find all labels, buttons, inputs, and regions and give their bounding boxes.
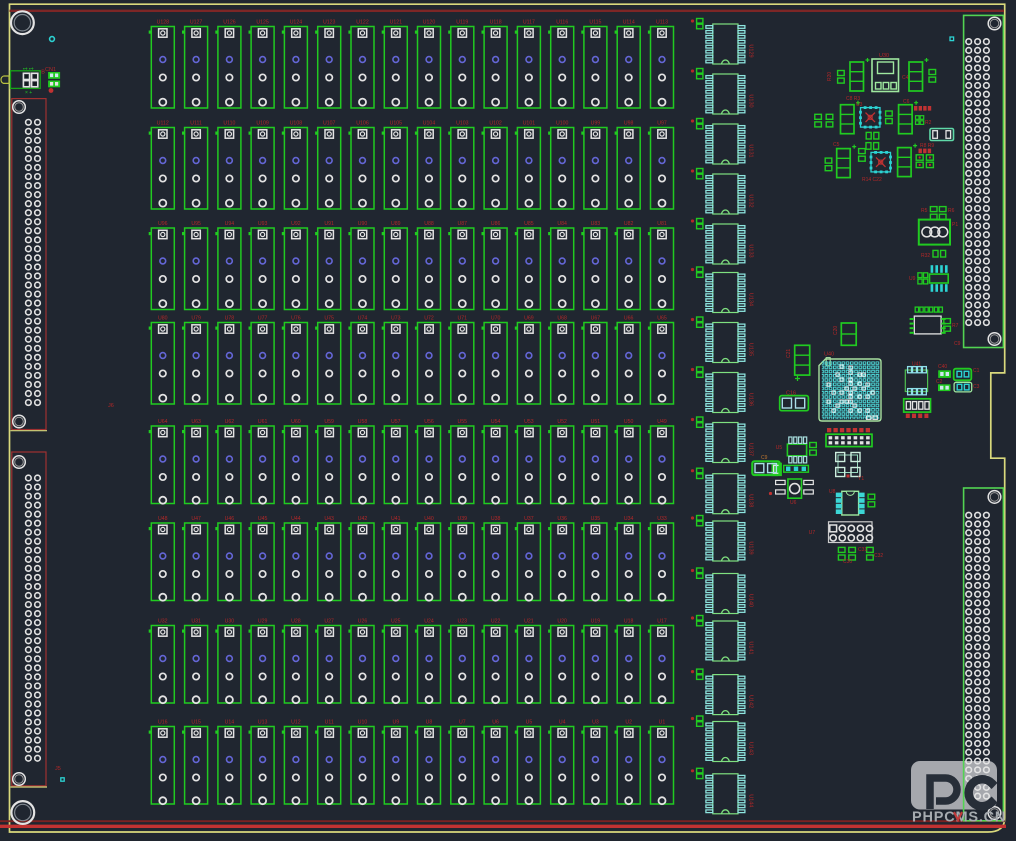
svg-text:U36: U36 (557, 516, 567, 522)
svg-text:U113: U113 (656, 19, 668, 25)
svg-text:U121: U121 (390, 19, 403, 25)
svg-text:U56: U56 (424, 419, 434, 425)
svg-text:U96: U96 (158, 221, 168, 227)
svg-text:U72: U72 (424, 315, 434, 321)
svg-text:U62: U62 (225, 419, 235, 425)
svg-text:U119: U119 (456, 19, 468, 25)
svg-text:× +: × + (25, 90, 32, 96)
svg-text:U4: U4 (559, 719, 566, 725)
svg-text:U144: U144 (748, 794, 754, 807)
svg-text:U48: U48 (158, 516, 168, 522)
svg-text:U16: U16 (158, 719, 168, 725)
svg-text:U13: U13 (258, 719, 268, 725)
svg-text:U6: U6 (790, 500, 797, 506)
svg-text:C6: C6 (903, 99, 910, 105)
svg-text:U44: U44 (291, 516, 301, 522)
svg-text:U106: U106 (356, 120, 369, 126)
svg-text:U141: U141 (748, 641, 754, 654)
svg-text:U125: U125 (256, 19, 269, 25)
svg-text:C30: C30 (843, 559, 852, 565)
svg-text:U101: U101 (523, 120, 536, 126)
svg-text:U89: U89 (391, 221, 401, 227)
svg-text:R8 R9: R8 R9 (920, 143, 934, 149)
svg-text:U59: U59 (324, 419, 334, 425)
svg-text:U127: U127 (190, 19, 203, 25)
svg-text:U131: U131 (748, 144, 754, 157)
svg-text:U24: U24 (424, 618, 434, 624)
svg-text:U61: U61 (258, 419, 268, 425)
svg-text:U22: U22 (491, 618, 501, 624)
svg-text:U95: U95 (191, 221, 201, 227)
svg-text:U17: U17 (657, 618, 667, 624)
svg-text:U100: U100 (556, 120, 569, 126)
svg-text:U7: U7 (459, 719, 466, 725)
svg-text:U97: U97 (657, 120, 667, 126)
svg-text:U91: U91 (324, 221, 334, 227)
svg-text:U40: U40 (424, 516, 434, 522)
svg-text:U7: U7 (809, 530, 816, 536)
svg-text:U138: U138 (748, 494, 754, 507)
svg-text:U114: U114 (623, 19, 635, 25)
svg-text:U5: U5 (776, 445, 783, 451)
svg-text:U25: U25 (391, 618, 401, 624)
svg-text:R5: R5 (921, 208, 928, 214)
svg-text:U35: U35 (591, 516, 601, 522)
svg-text:U92: U92 (291, 221, 301, 227)
svg-text:U19: U19 (591, 618, 601, 624)
svg-text:U142: U142 (748, 695, 754, 708)
svg-text:U128: U128 (157, 19, 170, 25)
svg-text:U118: U118 (490, 19, 502, 25)
svg-text:U51: U51 (591, 419, 601, 425)
svg-text:U82: U82 (624, 221, 634, 227)
svg-text:U129: U129 (748, 44, 754, 57)
svg-text:C1: C1 (973, 368, 980, 374)
svg-text:U69: U69 (524, 315, 534, 321)
svg-text:U53: U53 (524, 419, 534, 425)
svg-text:U20: U20 (557, 618, 567, 624)
svg-text:U47: U47 (191, 516, 201, 522)
svg-text:U30: U30 (225, 618, 235, 624)
svg-text:C2: C2 (936, 379, 943, 385)
svg-text:C9: C9 (761, 455, 768, 461)
svg-text:U49: U49 (657, 419, 667, 425)
svg-text:U123: U123 (323, 19, 336, 25)
svg-text:U21: U21 (524, 618, 534, 624)
svg-text:C32: C32 (874, 553, 883, 559)
svg-text:R14 C22: R14 C22 (862, 177, 882, 183)
svg-text:U107: U107 (323, 120, 336, 126)
svg-text:U12: U12 (291, 719, 301, 725)
svg-text:U31: U31 (191, 618, 201, 624)
svg-text:Y1: Y1 (858, 476, 864, 482)
svg-text:U8: U8 (829, 489, 836, 495)
svg-text:U86: U86 (491, 221, 501, 227)
svg-text:U93: U93 (258, 221, 268, 227)
svg-text:U139: U139 (748, 541, 754, 554)
svg-text:U54: U54 (491, 419, 501, 425)
svg-text:U29: U29 (258, 618, 268, 624)
svg-text:U64: U64 (158, 419, 168, 425)
svg-text:U43: U43 (324, 516, 334, 522)
svg-text:U41: U41 (391, 516, 401, 522)
svg-text:U74: U74 (358, 315, 368, 321)
svg-text:U8: U8 (426, 719, 433, 725)
svg-text:U50: U50 (624, 419, 634, 425)
svg-text:U99: U99 (591, 120, 601, 126)
svg-text:R6: R6 (948, 208, 955, 214)
svg-text:U41: U41 (912, 362, 921, 368)
svg-text:U39: U39 (458, 516, 468, 522)
svg-text:U94: U94 (225, 221, 235, 227)
svg-text:U132: U132 (748, 194, 754, 207)
svg-text:U135: U135 (748, 343, 754, 356)
svg-text:U10: U10 (358, 719, 368, 725)
svg-text:U112: U112 (157, 120, 169, 126)
svg-text:U45: U45 (258, 516, 268, 522)
svg-text:U73: U73 (391, 315, 401, 321)
svg-text:U6: U6 (492, 719, 499, 725)
svg-text:U80: U80 (158, 315, 168, 321)
svg-text:U9: U9 (392, 719, 399, 725)
svg-text:U81: U81 (657, 221, 667, 227)
svg-text:U77: U77 (258, 315, 268, 321)
svg-text:U1: U1 (659, 719, 666, 725)
svg-text:U58: U58 (358, 419, 368, 425)
svg-text:U78: U78 (225, 315, 235, 321)
svg-text:U65: U65 (657, 315, 667, 321)
svg-text:U66: U66 (624, 315, 634, 321)
svg-text:R7: R7 (952, 323, 959, 329)
svg-text:U110: U110 (223, 120, 235, 126)
svg-text:U85: U85 (524, 221, 534, 227)
svg-text:•+ •+: •+ •+ (23, 66, 34, 72)
svg-text:C3: C3 (973, 384, 980, 390)
svg-text:U3: U3 (592, 719, 599, 725)
svg-text:U115: U115 (589, 19, 601, 25)
svg-text:U55: U55 (458, 419, 468, 425)
svg-text:U136: U136 (748, 393, 754, 406)
svg-text:U117: U117 (523, 19, 535, 25)
svg-text:U63: U63 (191, 419, 201, 425)
svg-text:U83: U83 (591, 221, 601, 227)
svg-text:U34: U34 (624, 516, 634, 522)
svg-text:U133: U133 (748, 244, 754, 257)
svg-text:U134: U134 (748, 293, 754, 306)
svg-text:U3: U3 (856, 102, 863, 108)
svg-text:J5: J5 (55, 766, 61, 772)
svg-text:U11: U11 (325, 719, 334, 725)
svg-text:U23: U23 (458, 618, 468, 624)
svg-text:U130: U130 (748, 94, 754, 107)
svg-text:U71: U71 (458, 315, 468, 321)
svg-text:U67: U67 (591, 315, 601, 321)
svg-text:U14: U14 (225, 719, 235, 725)
svg-text:C9: C9 (954, 341, 961, 347)
svg-text:U2: U2 (625, 719, 632, 725)
svg-text:U103: U103 (456, 120, 469, 126)
svg-text:U57: U57 (391, 419, 401, 425)
svg-text:U102: U102 (489, 120, 502, 126)
svg-text:U33: U33 (657, 516, 667, 522)
svg-text:C4: C4 (902, 75, 909, 81)
svg-text:U9: U9 (909, 276, 916, 282)
svg-text:U5: U5 (526, 719, 533, 725)
svg-text:R2: R2 (925, 120, 932, 126)
svg-text:U126: U126 (223, 19, 236, 25)
svg-text:P1: P1 (952, 222, 958, 228)
svg-text:U26: U26 (358, 618, 368, 624)
svg-text:R32: R32 (921, 253, 930, 259)
svg-text:U108: U108 (290, 120, 303, 126)
svg-text:U42: U42 (358, 516, 368, 522)
svg-text:U60: U60 (291, 419, 301, 425)
svg-text:U32: U32 (158, 618, 168, 624)
svg-text:C21: C21 (786, 349, 792, 358)
svg-text:U30: U30 (879, 53, 889, 59)
svg-text:U46: U46 (225, 516, 235, 522)
svg-text:U70: U70 (491, 315, 501, 321)
svg-text:U37: U37 (524, 516, 534, 522)
svg-text:CN1: CN1 (45, 67, 56, 73)
svg-text:R20: R20 (827, 72, 833, 81)
svg-text:J6: J6 (108, 403, 114, 409)
svg-text:U18: U18 (624, 618, 634, 624)
svg-text:U88: U88 (424, 221, 434, 227)
svg-text:U104: U104 (423, 120, 436, 126)
svg-text:U124: U124 (290, 19, 303, 25)
svg-text:U140: U140 (748, 594, 754, 607)
svg-text:U90: U90 (358, 221, 368, 227)
svg-text:C31: C31 (858, 547, 867, 553)
svg-text:U68: U68 (557, 315, 567, 321)
svg-text:U79: U79 (191, 315, 201, 321)
svg-text:U40: U40 (824, 352, 834, 358)
svg-text:C40: C40 (938, 364, 947, 370)
svg-text:U27: U27 (324, 618, 334, 624)
svg-text:C16: C16 (786, 390, 796, 396)
svg-text:U84: U84 (557, 221, 567, 227)
svg-text:U120: U120 (423, 19, 436, 25)
svg-text:U87: U87 (458, 221, 468, 227)
svg-text:U109: U109 (256, 120, 269, 126)
svg-text:U116: U116 (556, 19, 568, 25)
svg-text:U122: U122 (356, 19, 369, 25)
svg-text:U76: U76 (291, 315, 301, 321)
svg-text:U98: U98 (624, 120, 634, 126)
svg-text:U28: U28 (291, 618, 301, 624)
svg-text:C20: C20 (833, 326, 839, 335)
svg-text:C5: C5 (833, 142, 840, 148)
svg-text:U15: U15 (191, 719, 201, 725)
svg-text:U143: U143 (748, 742, 754, 755)
svg-text:U38: U38 (491, 516, 501, 522)
svg-text:U52: U52 (557, 419, 567, 425)
svg-text:U75: U75 (324, 315, 334, 321)
svg-text:U105: U105 (390, 120, 403, 126)
svg-text:U111: U111 (190, 120, 202, 126)
svg-text:U137: U137 (748, 443, 754, 456)
